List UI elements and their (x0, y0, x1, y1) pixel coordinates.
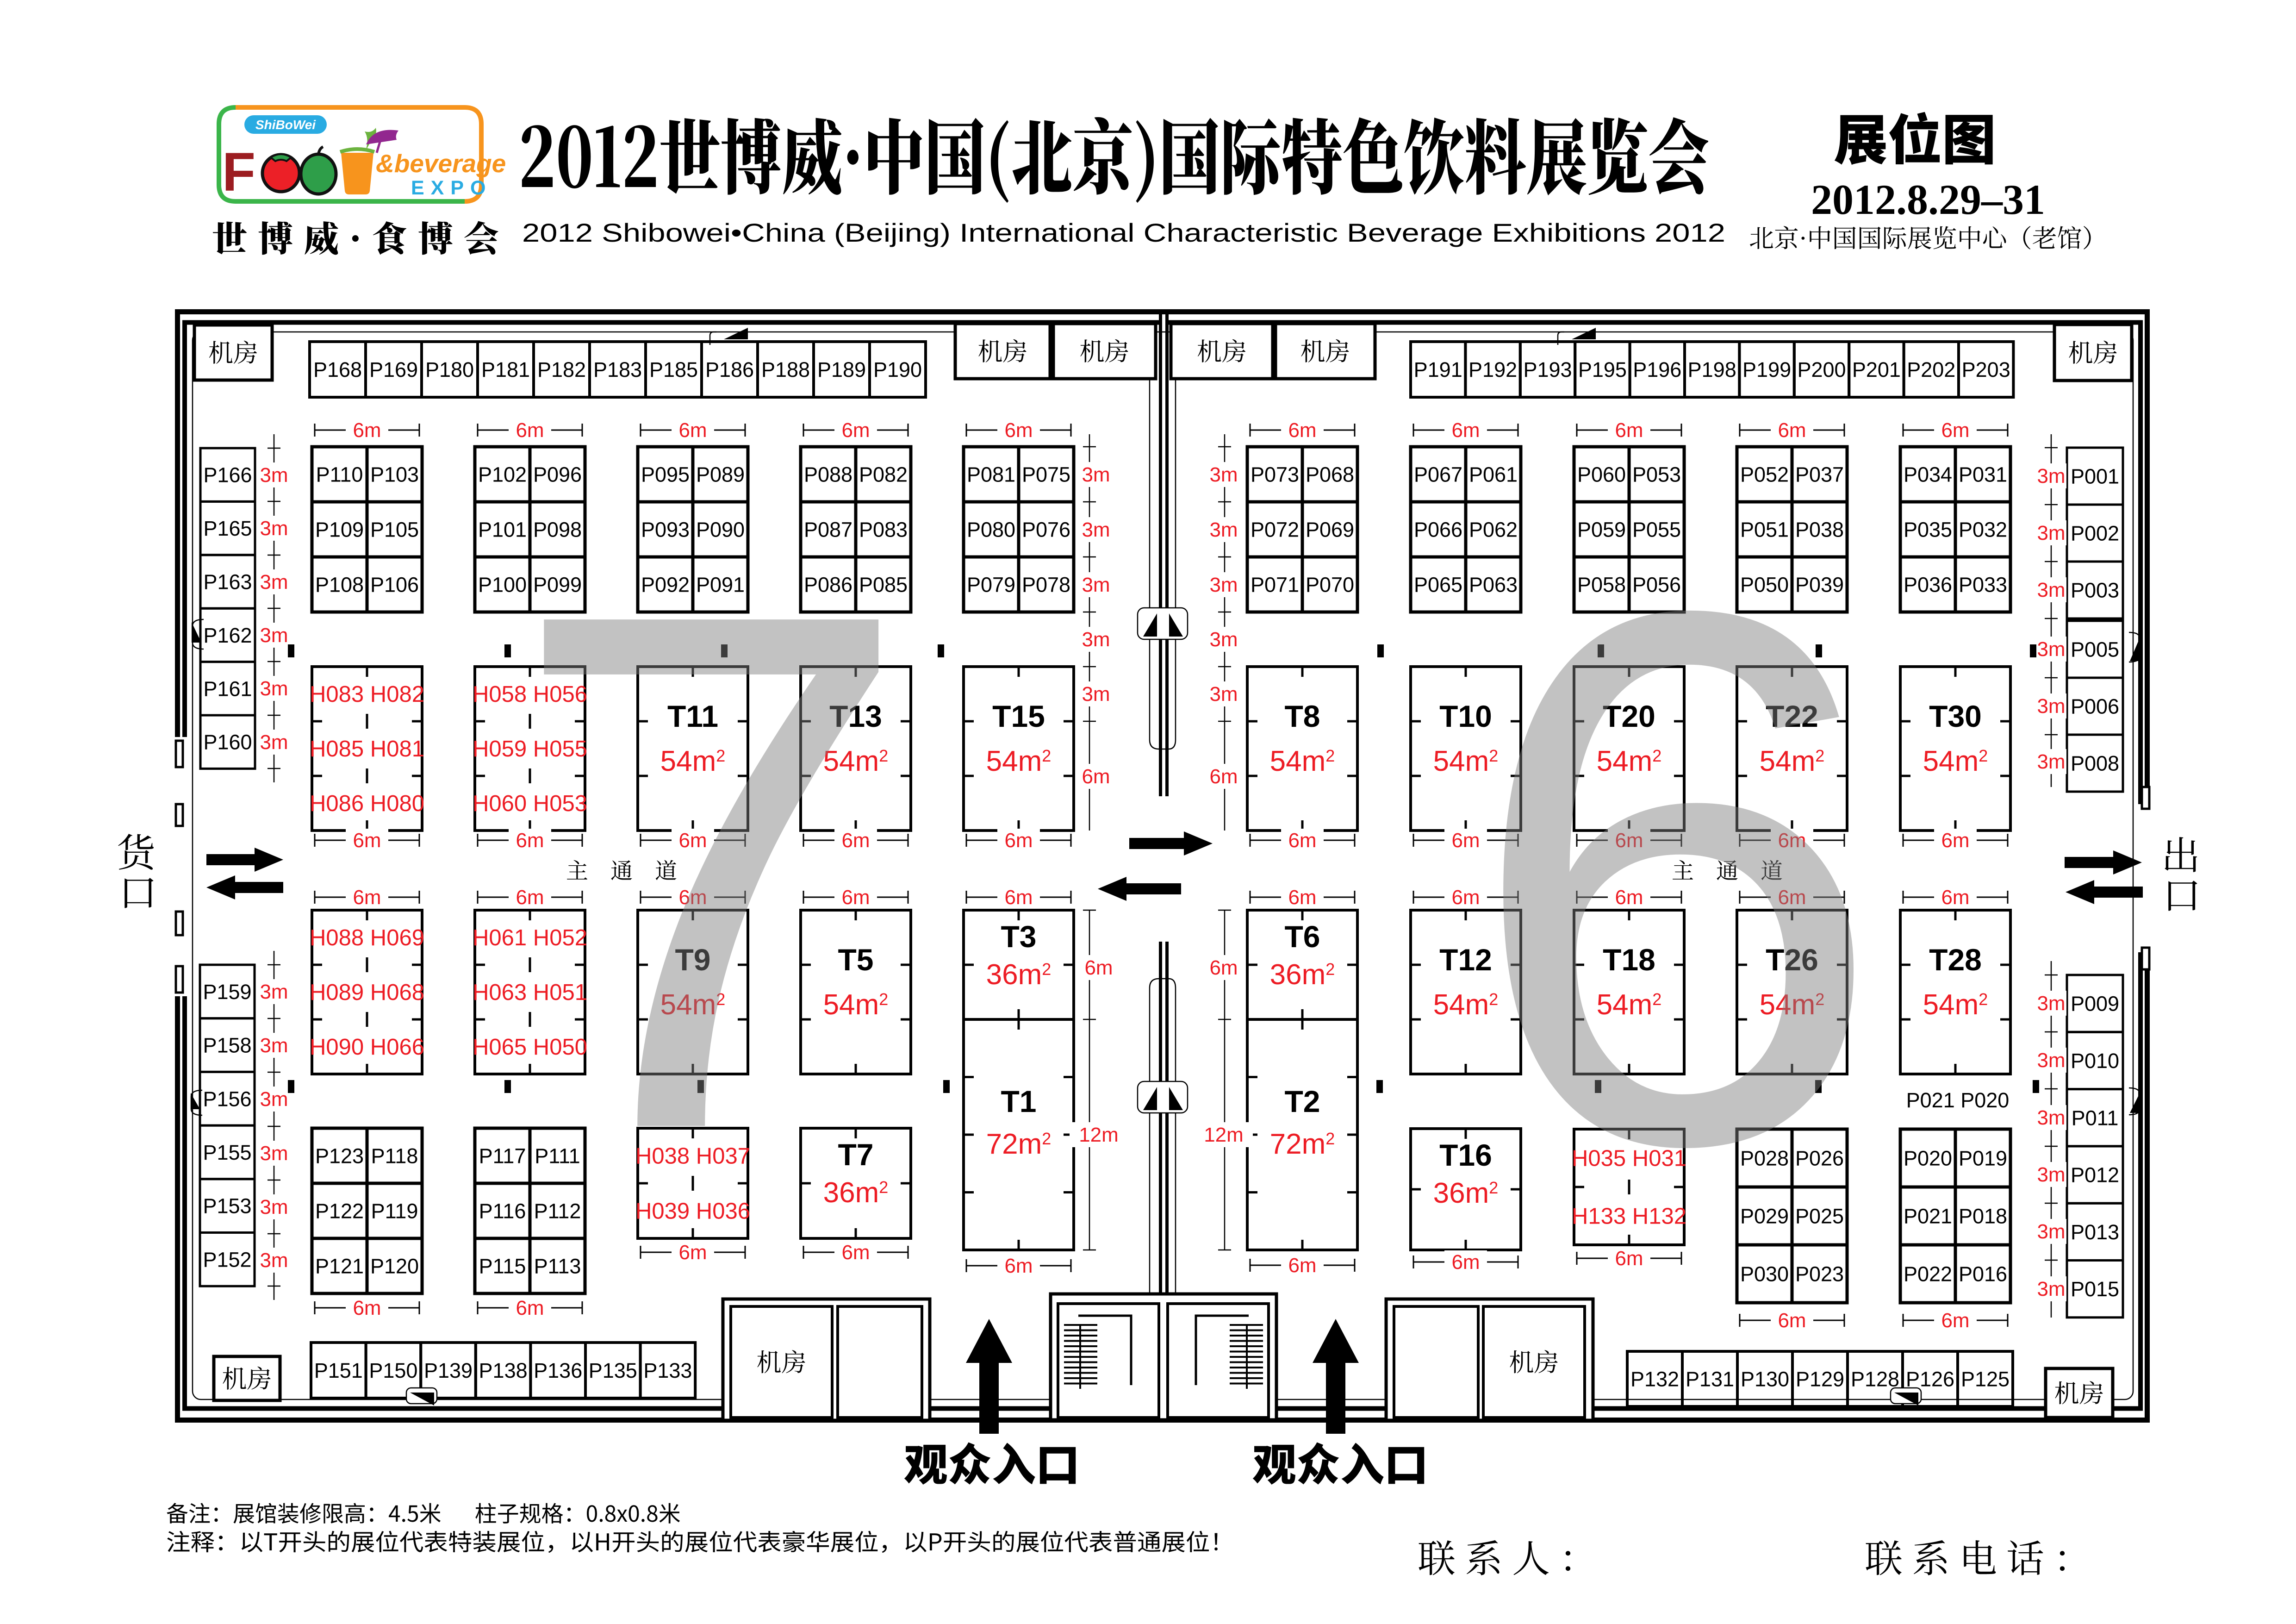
svg-text:P068: P068 (1306, 463, 1354, 487)
svg-text:P155: P155 (203, 1141, 251, 1164)
svg-text:72m2: 72m2 (1270, 1128, 1335, 1160)
svg-text:6m: 6m (678, 419, 707, 442)
svg-text:3m: 3m (1082, 683, 1110, 706)
svg-text:P073: P073 (1251, 463, 1299, 487)
svg-text:54m2: 54m2 (1923, 989, 1988, 1021)
svg-text:6m: 6m (353, 419, 381, 442)
svg-text:3m: 3m (260, 677, 288, 700)
svg-text:3m: 3m (260, 464, 288, 487)
svg-text:3m: 3m (260, 981, 288, 1003)
svg-text:P021 P020: P021 P020 (1906, 1088, 2010, 1112)
svg-text:EXPO: EXPO (411, 177, 492, 199)
svg-text:36m2: 36m2 (986, 959, 1052, 991)
svg-text:3m: 3m (260, 624, 288, 647)
svg-text:P036: P036 (1904, 573, 1952, 597)
svg-text:6m: 6m (516, 419, 544, 442)
svg-text:P008: P008 (2071, 752, 2119, 775)
svg-text:3m: 3m (2037, 1106, 2065, 1129)
svg-text:P188: P188 (761, 358, 810, 381)
svg-text:T1: T1 (1001, 1084, 1036, 1118)
svg-text:P185: P185 (649, 358, 698, 381)
svg-text:P013: P013 (2071, 1220, 2119, 1244)
svg-text:6m: 6m (353, 886, 381, 909)
svg-text:H086 H080: H086 H080 (310, 791, 424, 816)
svg-text:54m2: 54m2 (1270, 745, 1335, 777)
svg-text:P153: P153 (203, 1194, 251, 1218)
svg-text:P158: P158 (203, 1034, 251, 1057)
svg-text:6m: 6m (841, 419, 870, 442)
svg-text:6m: 6m (1288, 419, 1316, 442)
svg-text:P081: P081 (967, 463, 1015, 487)
svg-text:6m: 6m (1084, 956, 1113, 979)
svg-text:P181: P181 (481, 358, 530, 381)
svg-text:P186: P186 (705, 358, 754, 381)
svg-text:6m: 6m (1451, 419, 1480, 442)
svg-text:P138: P138 (479, 1359, 528, 1382)
svg-text:3m: 3m (1082, 518, 1110, 541)
svg-text:6m: 6m (1941, 886, 1969, 909)
svg-text:P015: P015 (2071, 1277, 2119, 1301)
svg-text:P076: P076 (1022, 518, 1070, 542)
svg-text:P133: P133 (643, 1359, 692, 1382)
svg-text:6m: 6m (353, 1297, 381, 1319)
svg-text:2012 Shibowei•China (Beijing): 2012 Shibowei•China (Beijing) Internatio… (522, 218, 1725, 247)
svg-text:P162: P162 (203, 624, 252, 647)
svg-text:P168: P168 (313, 358, 362, 381)
svg-text:72m2: 72m2 (986, 1128, 1052, 1160)
svg-text:P191: P191 (1414, 358, 1462, 381)
svg-text:P193: P193 (1523, 358, 1572, 381)
svg-text:6m: 6m (1288, 829, 1316, 852)
svg-text:P022: P022 (1904, 1262, 1952, 1286)
svg-text:T15: T15 (992, 699, 1045, 733)
svg-text:6m: 6m (1004, 1255, 1033, 1277)
svg-text:P071: P071 (1251, 573, 1299, 597)
svg-text:3m: 3m (260, 1034, 288, 1057)
svg-text:H083 H082: H083 H082 (310, 682, 424, 707)
svg-text:T30: T30 (1929, 699, 1982, 733)
svg-text:3m: 3m (1082, 628, 1110, 651)
svg-text:3m: 3m (2037, 695, 2065, 718)
svg-text:3m: 3m (2037, 1049, 2065, 1072)
svg-text:P080: P080 (967, 518, 1015, 542)
svg-text:3m: 3m (1082, 463, 1110, 486)
svg-text:P020: P020 (1904, 1147, 1952, 1170)
svg-text:P150: P150 (369, 1359, 417, 1382)
svg-text:P183: P183 (593, 358, 642, 381)
svg-text:3m: 3m (1209, 463, 1238, 486)
svg-text:P009: P009 (2071, 992, 2119, 1016)
svg-text:P122: P122 (315, 1199, 364, 1223)
svg-text:3m: 3m (2037, 638, 2065, 661)
svg-text:H085 H081: H085 H081 (310, 737, 424, 762)
svg-text:6m: 6m (1288, 886, 1316, 909)
svg-text:P160: P160 (203, 731, 252, 754)
svg-text:T6: T6 (1284, 919, 1320, 954)
svg-text:P189: P189 (817, 358, 866, 381)
svg-text:&beverage: &beverage (376, 149, 506, 178)
svg-text:3m: 3m (1209, 574, 1238, 596)
svg-text:P031: P031 (1959, 463, 2007, 487)
svg-text:P201: P201 (1852, 358, 1901, 381)
svg-text:P066: P066 (1414, 518, 1462, 542)
svg-text:P118: P118 (371, 1144, 418, 1168)
svg-text:P003: P003 (2071, 579, 2119, 602)
svg-text:6m: 6m (1209, 765, 1238, 788)
svg-text:12m: 12m (1079, 1124, 1119, 1146)
svg-text:P105: P105 (370, 518, 419, 542)
svg-text:P156: P156 (203, 1087, 251, 1111)
svg-text:3m: 3m (260, 1249, 288, 1272)
svg-text:6m: 6m (353, 829, 381, 852)
svg-text:P182: P182 (537, 358, 586, 381)
svg-text:6m: 6m (1004, 886, 1033, 909)
svg-text:T3: T3 (1001, 919, 1036, 954)
svg-text:P001: P001 (2071, 465, 2119, 488)
svg-text:T2: T2 (1284, 1084, 1320, 1118)
svg-text:P166: P166 (203, 463, 252, 487)
svg-text:P192: P192 (1468, 358, 1517, 381)
svg-text:3m: 3m (260, 1088, 288, 1111)
svg-text:P121: P121 (315, 1255, 364, 1278)
svg-text:P075: P075 (1022, 463, 1070, 487)
svg-text:6m: 6m (1082, 765, 1110, 788)
svg-text:P103: P103 (370, 463, 419, 487)
svg-text:P067: P067 (1414, 463, 1462, 487)
svg-text:P010: P010 (2071, 1049, 2119, 1073)
svg-text:7: 7 (506, 460, 915, 1282)
svg-text:P135: P135 (589, 1359, 637, 1382)
svg-text:3m: 3m (260, 1142, 288, 1165)
svg-text:P034: P034 (1904, 463, 1952, 487)
svg-text:P019: P019 (1959, 1147, 2007, 1170)
svg-text:P072: P072 (1251, 518, 1299, 542)
svg-text:P198: P198 (1688, 358, 1736, 381)
svg-text:P011: P011 (2072, 1106, 2119, 1130)
svg-text:54m2: 54m2 (986, 745, 1052, 777)
svg-text:3m: 3m (2037, 1278, 2065, 1300)
svg-text:6m: 6m (1941, 1309, 1969, 1332)
svg-text:P169: P169 (369, 358, 418, 381)
svg-text:3m: 3m (2037, 750, 2065, 773)
svg-text:P018: P018 (1959, 1205, 2007, 1228)
svg-text:2012.8.29–31: 2012.8.29–31 (1811, 176, 2045, 223)
svg-text:P106: P106 (370, 573, 419, 597)
svg-text:P125: P125 (1961, 1368, 2010, 1391)
svg-text:P006: P006 (2071, 695, 2119, 718)
svg-text:P152: P152 (203, 1248, 251, 1271)
svg-text:H088 H069: H088 H069 (310, 925, 424, 950)
svg-text:6m: 6m (516, 1297, 544, 1319)
svg-text:36m2: 36m2 (1270, 959, 1335, 991)
svg-text:3m: 3m (1209, 518, 1238, 541)
svg-text:P108: P108 (315, 573, 364, 597)
svg-text:6m: 6m (1941, 829, 1969, 852)
svg-text:3m: 3m (260, 1196, 288, 1218)
svg-text:H089 H068: H089 H068 (310, 980, 424, 1005)
svg-text:P202: P202 (1907, 358, 1955, 381)
svg-text:P130: P130 (1741, 1368, 1789, 1391)
svg-text:P021: P021 (1904, 1205, 1952, 1228)
svg-text:3m: 3m (1209, 628, 1238, 651)
svg-text:3m: 3m (260, 571, 288, 593)
svg-text:T8: T8 (1284, 699, 1320, 733)
svg-text:P002: P002 (2071, 522, 2119, 545)
svg-text:P151: P151 (314, 1359, 363, 1382)
svg-text:P199: P199 (1742, 358, 1791, 381)
svg-text:P079: P079 (967, 573, 1015, 597)
svg-text:3m: 3m (260, 517, 288, 540)
svg-text:3m: 3m (2037, 1220, 2065, 1243)
svg-text:T28: T28 (1929, 943, 1982, 977)
svg-text:P069: P069 (1306, 518, 1354, 542)
svg-text:P005: P005 (2071, 638, 2119, 662)
svg-text:P163: P163 (203, 570, 252, 594)
svg-text:P139: P139 (424, 1359, 473, 1382)
svg-text:3m: 3m (2037, 579, 2065, 601)
svg-text:P195: P195 (1578, 358, 1627, 381)
svg-text:P129: P129 (1796, 1368, 1844, 1391)
svg-text:54m2: 54m2 (1923, 745, 1988, 777)
svg-text:ShiBoWei: ShiBoWei (255, 118, 316, 132)
svg-text:6m: 6m (1615, 419, 1643, 442)
svg-text:3m: 3m (260, 731, 288, 754)
svg-text:P165: P165 (203, 517, 252, 540)
svg-text:P180: P180 (425, 358, 474, 381)
svg-text:12m: 12m (1204, 1124, 1244, 1146)
svg-text:3m: 3m (2037, 1163, 2065, 1186)
svg-text:P078: P078 (1022, 573, 1070, 597)
svg-text:P203: P203 (1962, 358, 2010, 381)
svg-text:3m: 3m (2037, 522, 2065, 544)
svg-text:P123: P123 (315, 1144, 364, 1168)
svg-text:6m: 6m (1778, 1309, 1806, 1332)
svg-text:6m: 6m (1941, 419, 1969, 442)
svg-text:P070: P070 (1306, 573, 1354, 597)
svg-text:P161: P161 (203, 677, 252, 700)
svg-text:P190: P190 (873, 358, 922, 381)
svg-text:P119: P119 (371, 1199, 418, 1223)
svg-text:6m: 6m (1288, 1254, 1316, 1277)
svg-text:P033: P033 (1959, 573, 2007, 597)
svg-text:P109: P109 (315, 518, 364, 542)
svg-text:P132: P132 (1630, 1368, 1679, 1391)
svg-text:6m: 6m (1004, 829, 1033, 852)
svg-text:3m: 3m (2037, 992, 2065, 1015)
svg-text:P065: P065 (1414, 573, 1462, 597)
svg-text:P200: P200 (1797, 358, 1846, 381)
svg-text:P012: P012 (2071, 1163, 2119, 1187)
svg-text:3m: 3m (1082, 574, 1110, 596)
svg-text:P196: P196 (1633, 358, 1681, 381)
svg-text:H090 H066: H090 H066 (310, 1035, 424, 1060)
svg-text:P035: P035 (1904, 518, 1952, 542)
svg-text:P159: P159 (203, 980, 251, 1004)
svg-text:6: 6 (1465, 453, 1887, 1302)
svg-text:P110: P110 (316, 463, 363, 487)
svg-text:P131: P131 (1686, 1368, 1734, 1391)
svg-text:P136: P136 (534, 1359, 582, 1382)
svg-text:3m: 3m (2037, 465, 2065, 487)
svg-text:P016: P016 (1959, 1262, 2007, 1286)
svg-text:6m: 6m (1778, 419, 1806, 442)
svg-text:F: F (222, 142, 255, 203)
svg-text:P120: P120 (370, 1255, 419, 1278)
svg-text:P032: P032 (1959, 518, 2007, 542)
svg-text:P128: P128 (1851, 1368, 1899, 1391)
svg-text:6m: 6m (1209, 956, 1238, 979)
svg-text:6m: 6m (1004, 419, 1033, 442)
svg-text:3m: 3m (1209, 683, 1238, 706)
